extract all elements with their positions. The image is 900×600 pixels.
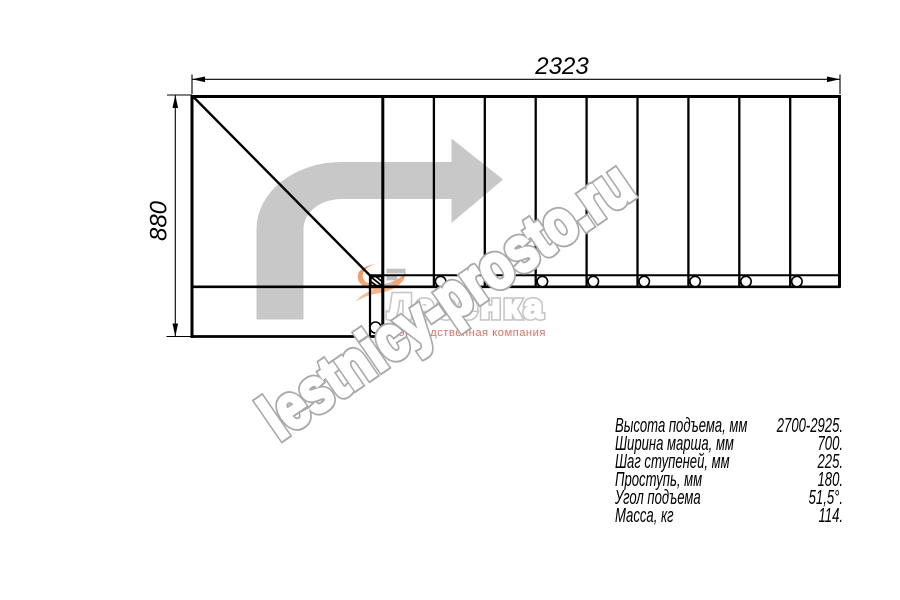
svg-text:2323: 2323	[534, 53, 589, 80]
svg-text:Масса, кг: Масса, кг	[615, 504, 674, 526]
svg-text:114.: 114.	[818, 504, 843, 526]
svg-text:880: 880	[146, 200, 173, 241]
